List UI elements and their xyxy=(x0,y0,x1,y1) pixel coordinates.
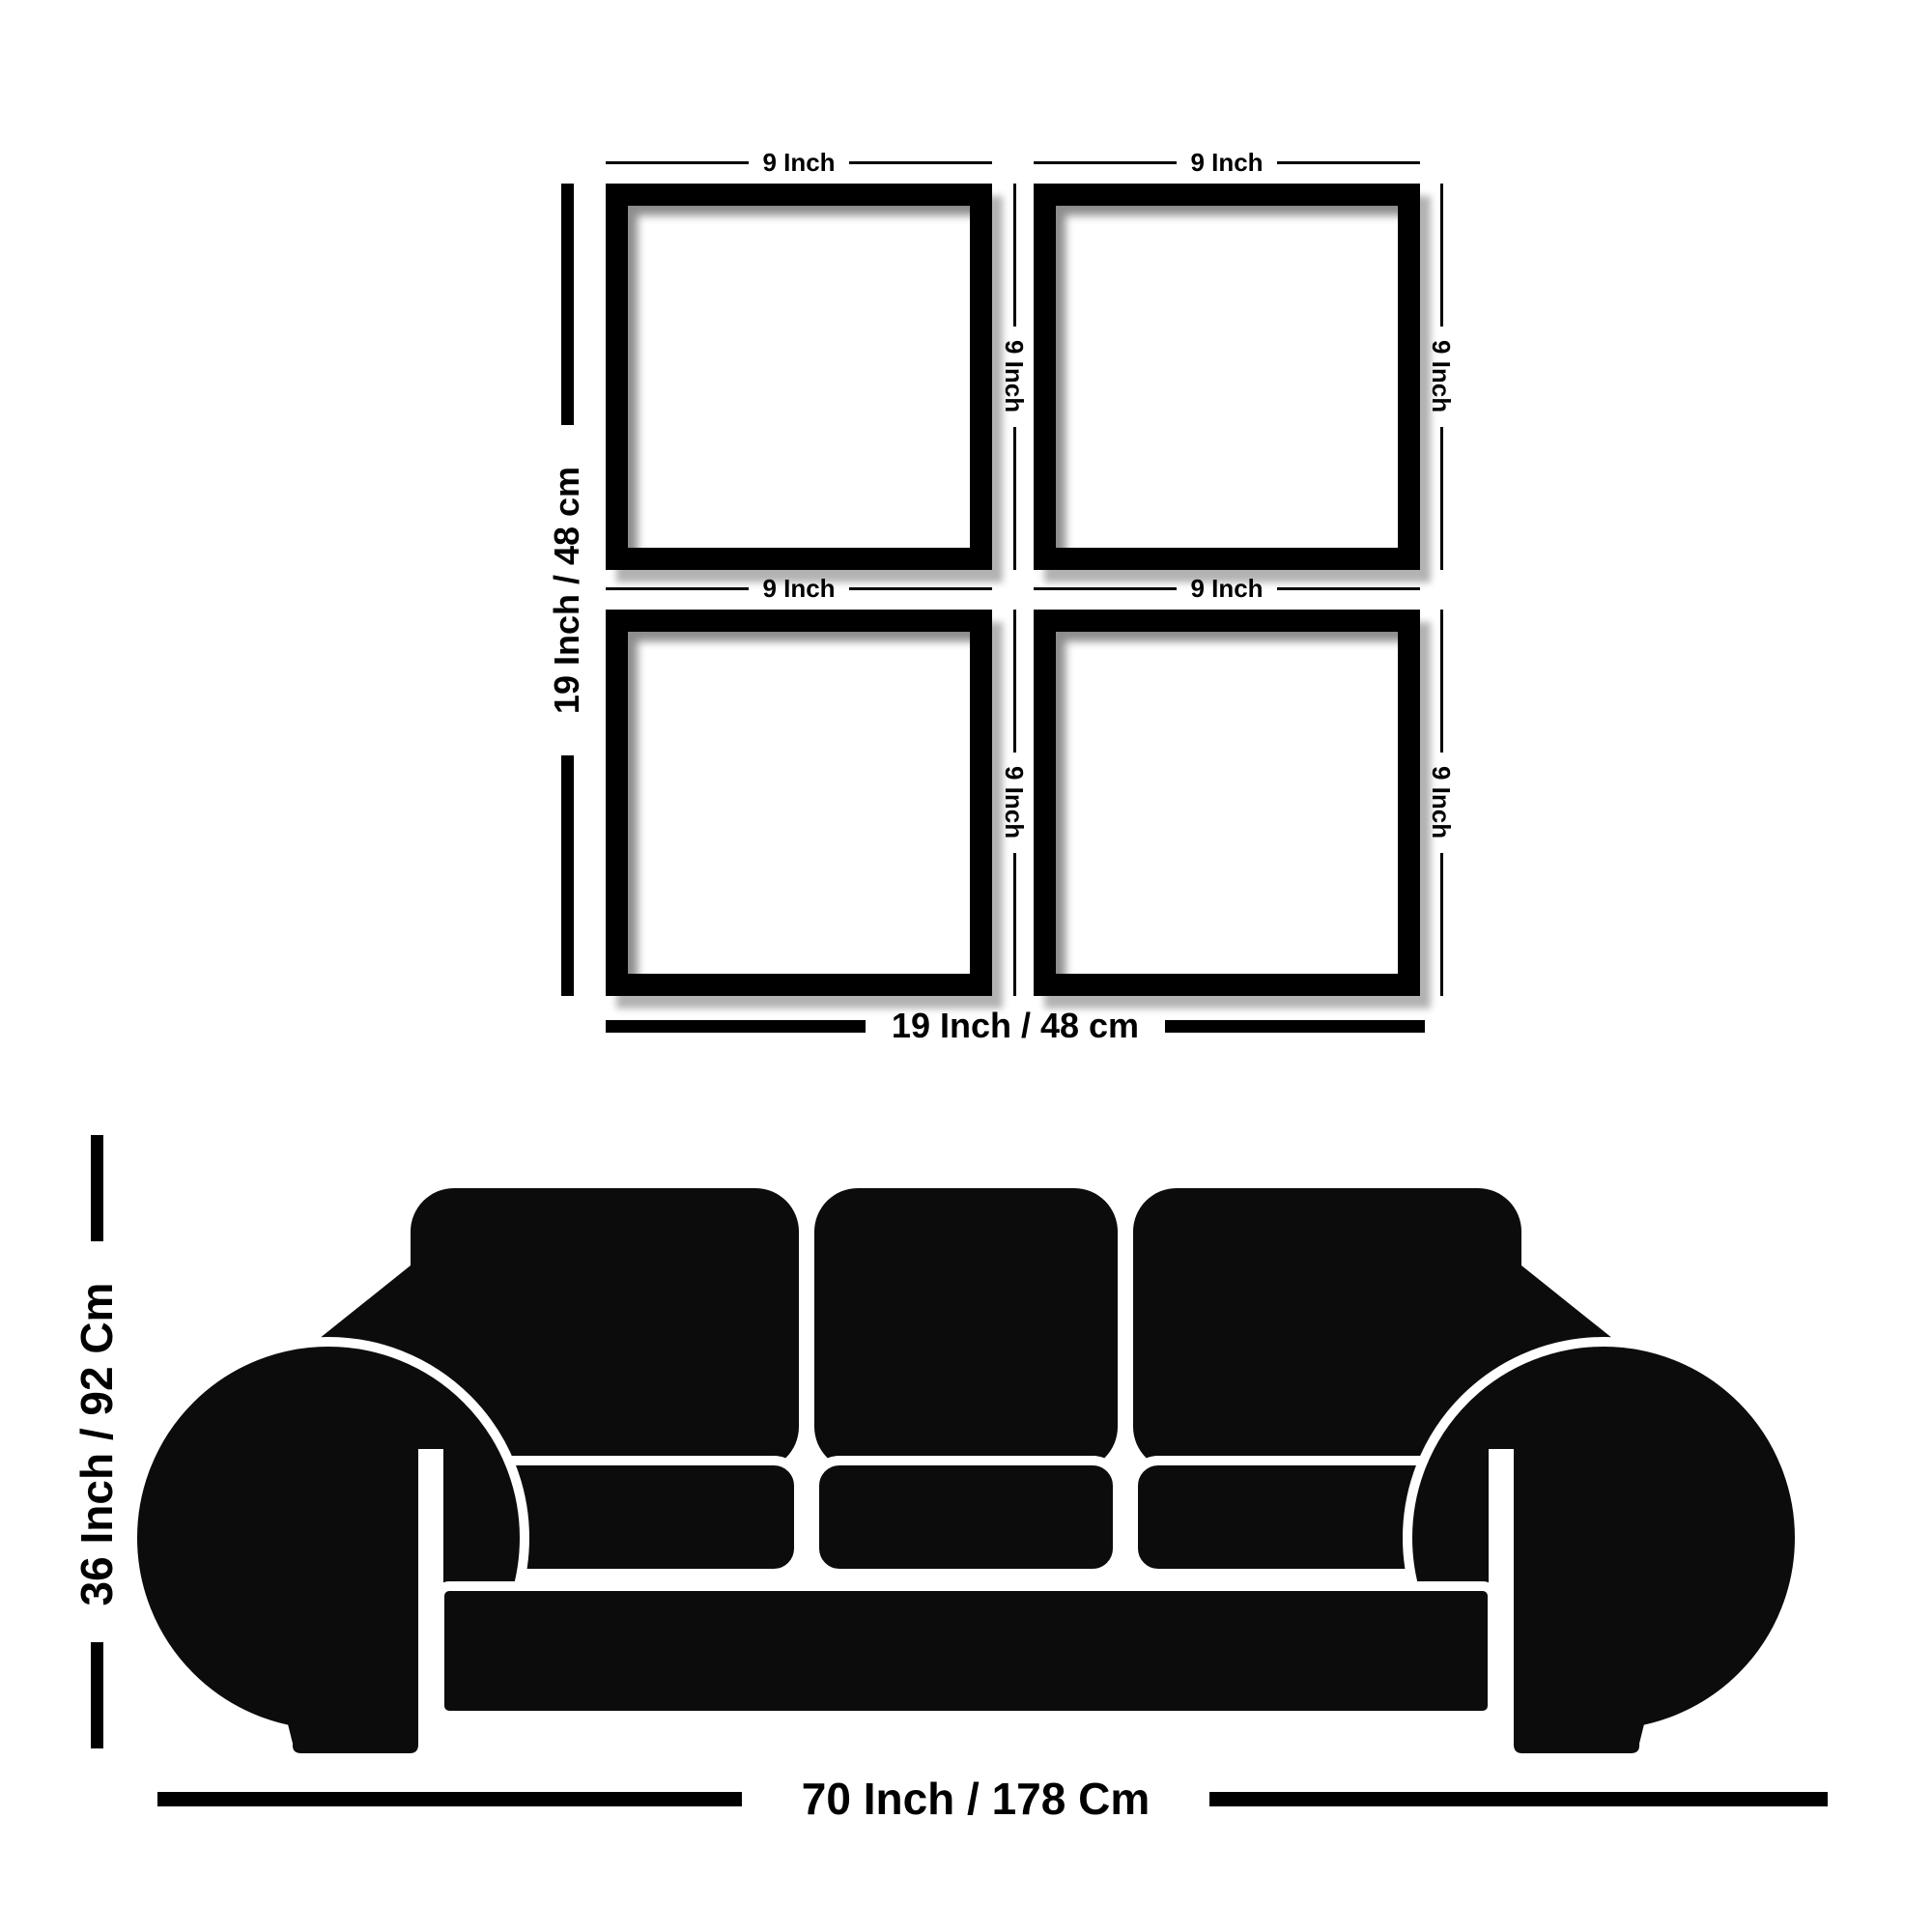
sofa-seat-cushion-middle xyxy=(814,1461,1118,1574)
sofa-leg-left xyxy=(266,1634,418,1753)
dim-line-sofa-width-left xyxy=(157,1792,742,1806)
dim-line-sofa-height-top xyxy=(91,1135,103,1241)
wall-frame-size-diagram: 9 Inch 9 Inch 9 Inch 9 Inch 9 Inch 9 Inc… xyxy=(0,0,1932,1932)
sofa-back-cushion-middle xyxy=(814,1188,1118,1470)
sofa-silhouette xyxy=(0,0,1932,1932)
sofa-leg-right xyxy=(1514,1634,1666,1753)
sofa-base xyxy=(440,1586,1492,1716)
dim-line-sofa-width-right xyxy=(1209,1792,1828,1806)
sofa-width-label: 70 Inch / 178 Cm xyxy=(802,1776,1151,1821)
dim-line-sofa-height-bottom xyxy=(91,1642,103,1748)
sofa-height-label: 36 Inch / 92 Cm xyxy=(74,1283,119,1606)
